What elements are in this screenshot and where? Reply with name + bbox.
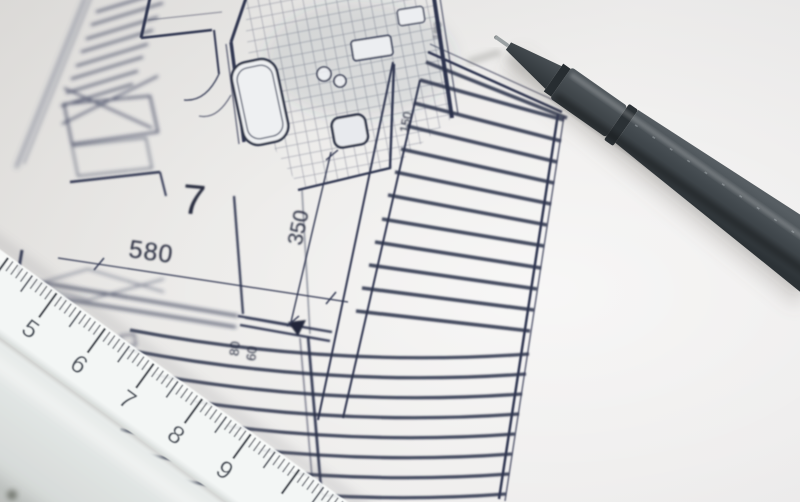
- scene-canvas: 7 580 350 80 60 150 180 4 5 6 7 8 9: [0, 0, 800, 502]
- pen-needle-tip: [494, 35, 509, 47]
- bathroom: [229, 0, 458, 190]
- dim-180-label: 180: [431, 21, 444, 40]
- staircase-symbol: [16, 0, 168, 176]
- room-number-label: 7: [180, 175, 207, 224]
- ruler: 4 5 6 7 8 9: [0, 194, 445, 502]
- photo-architectural-plan: 7 580 350 80 60 150 180 4 5 6 7 8 9: [0, 0, 800, 502]
- dim-350-label: 350: [284, 208, 314, 247]
- door-arc: [184, 30, 231, 117]
- dim-60-label: 60: [243, 346, 259, 362]
- toilet-symbol: [330, 113, 369, 148]
- dim-580-label: 580: [127, 235, 175, 269]
- dim-80-label: 80: [226, 341, 242, 357]
- desk-speck: [7, 490, 17, 500]
